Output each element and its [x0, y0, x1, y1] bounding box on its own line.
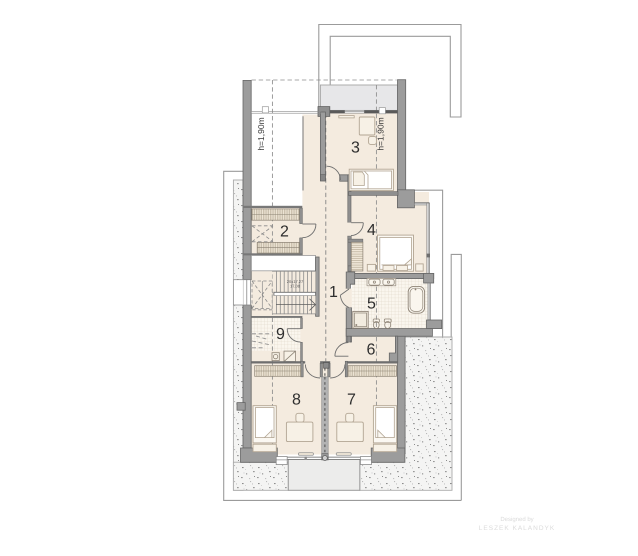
svg-text:LESZEK KALANDYK: LESZEK KALANDYK [479, 525, 555, 532]
svg-text:9: 9 [276, 326, 285, 343]
svg-text:Designed by: Designed by [500, 516, 533, 523]
svg-text:7: 7 [347, 392, 356, 409]
svg-text:6: 6 [367, 342, 376, 359]
svg-text:h=1,90m: h=1,90m [376, 117, 386, 150]
svg-text:17,08: 17,08 [290, 284, 301, 289]
svg-text:h=1,90m: h=1,90m [256, 117, 266, 150]
svg-text:5: 5 [367, 296, 376, 313]
svg-text:3: 3 [351, 140, 360, 157]
svg-text:2: 2 [280, 224, 289, 241]
svg-text:4: 4 [367, 222, 376, 239]
svg-text:1: 1 [329, 284, 338, 301]
svg-text:8: 8 [292, 392, 301, 409]
